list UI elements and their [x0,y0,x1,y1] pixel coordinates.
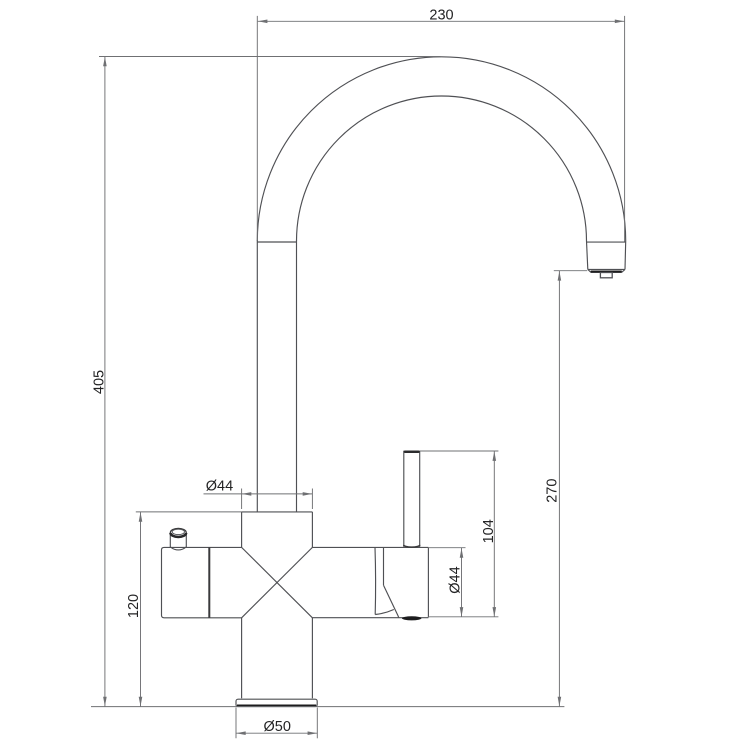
svg-text:120: 120 [126,594,142,618]
svg-text:Ø50: Ø50 [263,719,290,735]
svg-text:Ø44: Ø44 [206,478,233,494]
svg-text:270: 270 [544,479,560,503]
svg-text:Ø44: Ø44 [448,566,464,593]
svg-text:405: 405 [91,370,107,394]
svg-text:230: 230 [429,7,453,23]
svg-text:104: 104 [481,519,497,543]
